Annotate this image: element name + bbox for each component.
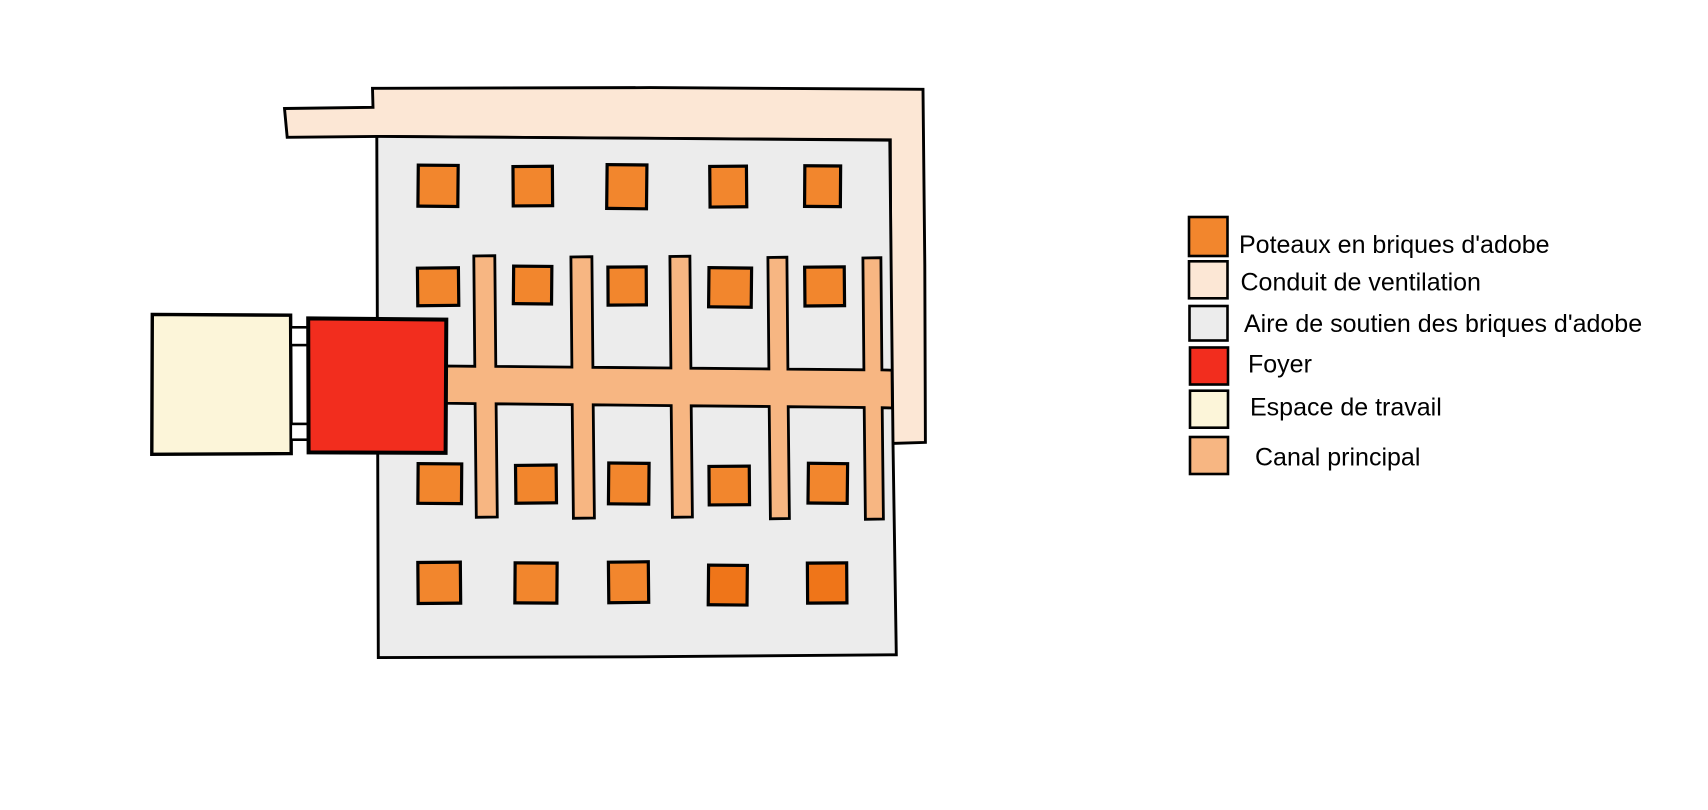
svg-text:Conduit de ventilation: Conduit de ventilation bbox=[1241, 269, 1481, 297]
svg-text:Canal principal: Canal principal bbox=[1255, 444, 1420, 472]
svg-text:Foyer: Foyer bbox=[1248, 351, 1312, 379]
svg-text:Poteaux en briques d'adobe: Poteaux en briques d'adobe bbox=[1239, 231, 1550, 259]
svg-text:Espace de travail: Espace de travail bbox=[1250, 393, 1442, 421]
svg-text:Aire de soutien des briques d': Aire de soutien des briques d'adobe bbox=[1244, 310, 1642, 338]
